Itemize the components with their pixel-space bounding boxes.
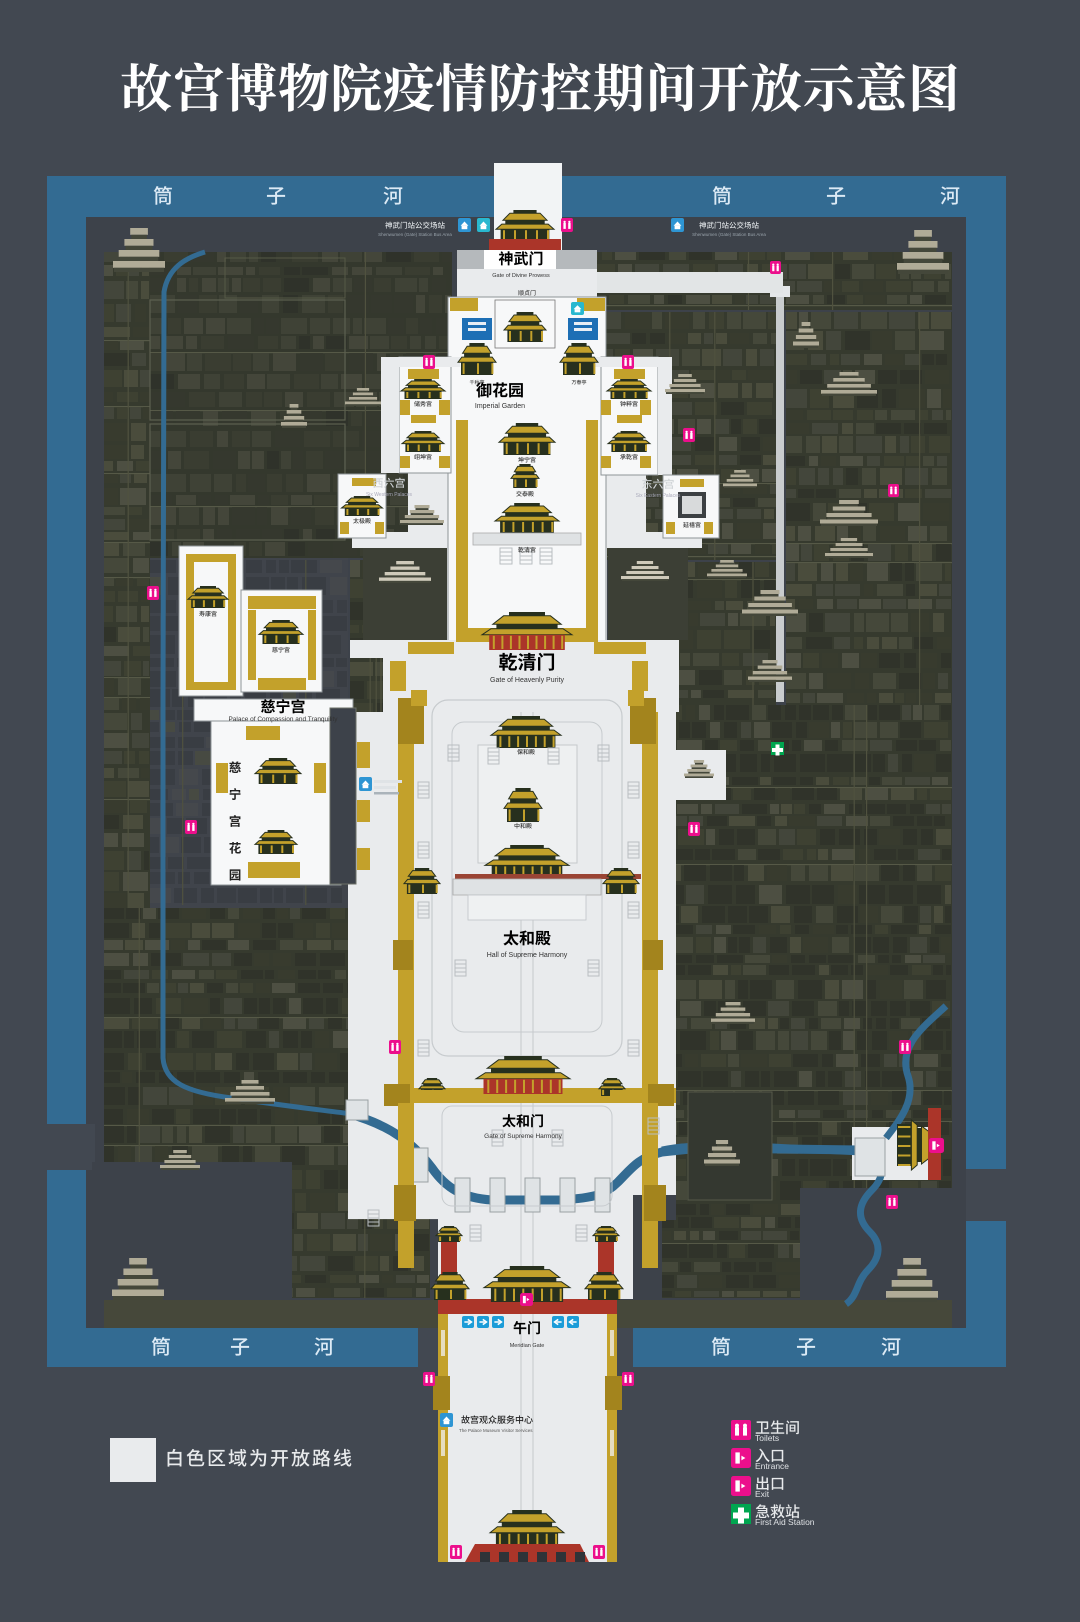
svg-text:Meridian Gate: Meridian Gate: [510, 1343, 545, 1349]
svg-text:Gate of Divine Prowess: Gate of Divine Prowess: [492, 273, 550, 279]
svg-text:Entrance: Entrance: [755, 1461, 789, 1471]
svg-text:Six Eastern Palaces: Six Eastern Palaces: [636, 493, 681, 499]
svg-text:Gate of Heavenly Purity: Gate of Heavenly Purity: [490, 677, 564, 684]
svg-text:Six Western Palaces: Six Western Palaces: [366, 492, 413, 498]
svg-text:Shenwumen (Gate) Station Bus A: Shenwumen (Gate) Station Bus Area: [378, 232, 452, 237]
svg-text:Toilets: Toilets: [755, 1433, 779, 1443]
svg-text:The Palace Museum Visitor Serv: The Palace Museum Visitor Services: [459, 1428, 533, 1433]
svg-text:Palace of Compassion and Tranq: Palace of Compassion and Tranquility: [228, 716, 338, 723]
svg-text:Gate of Supreme Harmony: Gate of Supreme Harmony: [484, 1133, 562, 1140]
svg-text:Imperial Garden: Imperial Garden: [475, 403, 525, 410]
svg-text:Exit: Exit: [755, 1489, 770, 1499]
svg-text:First Aid Station: First Aid Station: [755, 1517, 815, 1527]
svg-text:Shenwumen (Gate) Station Bus A: Shenwumen (Gate) Station Bus Area: [692, 232, 766, 237]
svg-text:Hall of Supreme Harmony: Hall of Supreme Harmony: [487, 952, 568, 959]
